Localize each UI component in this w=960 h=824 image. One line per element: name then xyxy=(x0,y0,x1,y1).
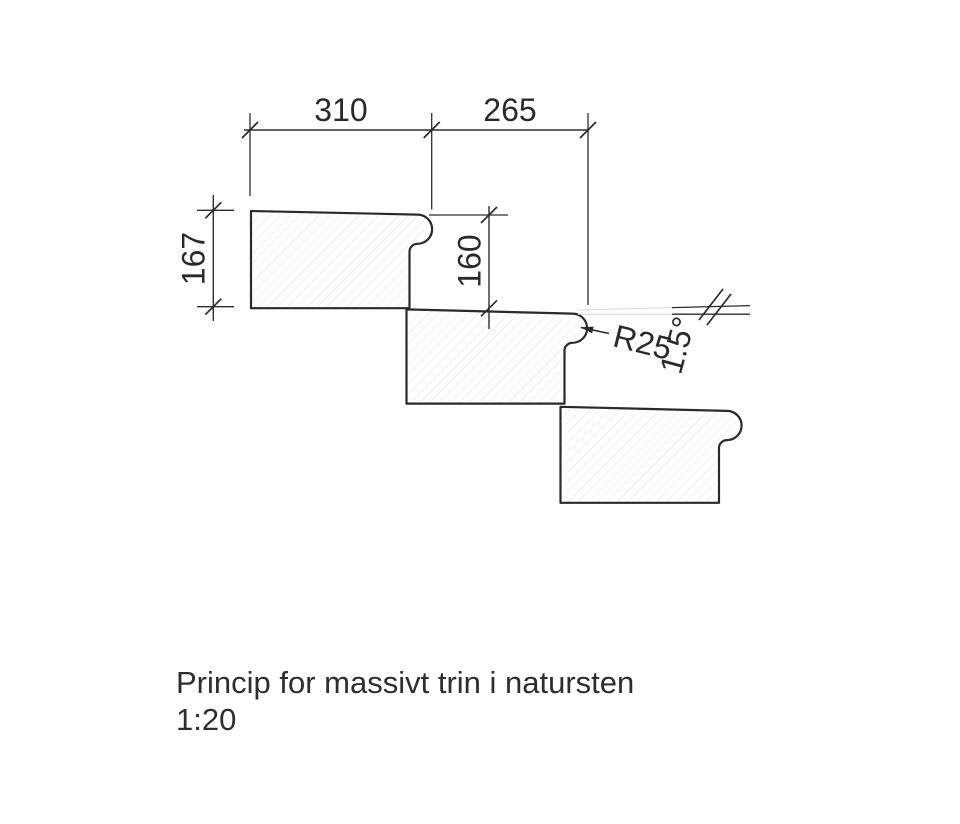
dimension-label-310: 310 xyxy=(314,92,367,128)
dimension-label-265: 265 xyxy=(483,92,536,128)
slope-angle-annotation: 1.5° xyxy=(577,289,750,377)
step-detail-technical-drawing: 310 265 167 160 R25 xyxy=(0,0,960,824)
drawing-sheet: 310 265 167 160 R25 xyxy=(0,0,960,824)
caption-scale: 1:20 xyxy=(176,702,236,737)
drawing-caption: Princip for massivt trin i natursten 1:2… xyxy=(176,665,634,737)
dimension-height-167-group: 167 xyxy=(176,195,235,321)
step-2-profile xyxy=(407,309,588,403)
step-3-profile xyxy=(561,407,742,503)
dimension-label-167: 167 xyxy=(176,232,212,285)
angle-tick xyxy=(707,294,731,325)
step-1-profile xyxy=(251,211,432,308)
angle-tick xyxy=(699,289,723,320)
angle-label-1-5deg: 1.5° xyxy=(653,313,703,378)
dimension-label-160: 160 xyxy=(452,234,488,287)
caption-title: Princip for massivt trin i natursten xyxy=(176,665,634,700)
slope-reference-line xyxy=(672,306,750,308)
